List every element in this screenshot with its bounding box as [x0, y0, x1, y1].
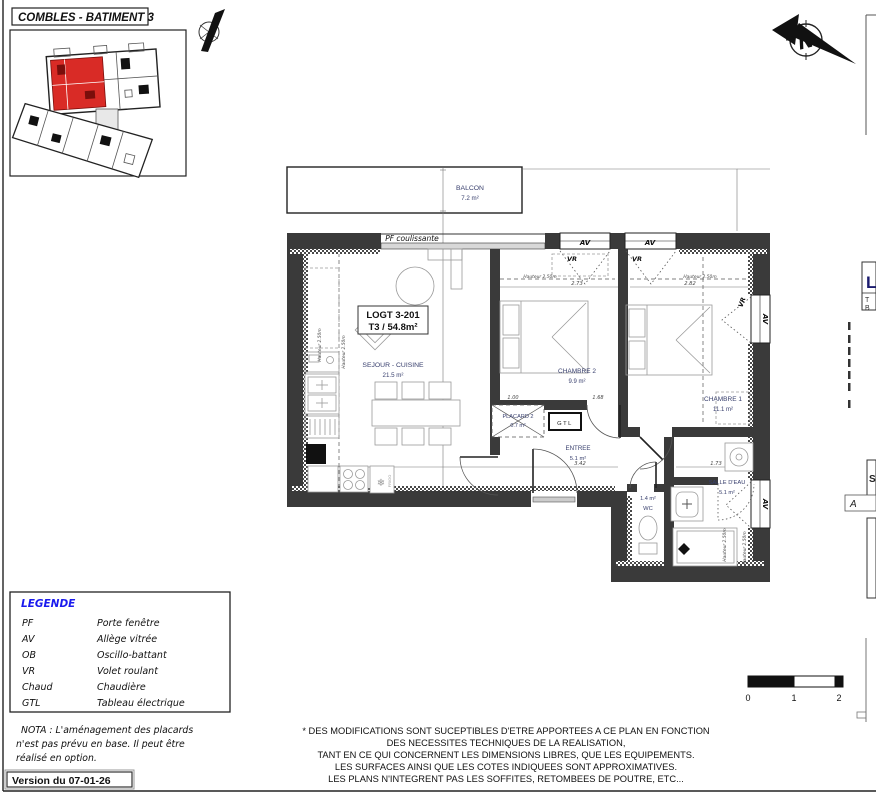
floor-plan-sheet: COMBLES - BATIMENT 3	[0, 0, 876, 800]
cutoff-letter: A	[849, 499, 857, 510]
hauteur-label: Hauteur 2.50m	[683, 274, 716, 280]
hauteur-label: Hauteur 2.50m	[742, 531, 748, 564]
dim-label: 3.42	[574, 461, 586, 467]
scale-tick: 1	[791, 693, 796, 703]
nota-block: NOTA : L'aménagement des placards n'est …	[16, 725, 193, 764]
room-sde-name: SALLE D'EAU	[709, 480, 746, 486]
plan-canvas: COMBLES - BATIMENT 3	[0, 0, 876, 800]
room-balcon-area: 7.2 m²	[461, 195, 479, 202]
svg-text:❄: ❄	[377, 478, 385, 489]
disclaimer-line: LES SURFACES AINSI QUE LES COTES INDIQUE…	[335, 762, 677, 772]
disclaimer-line: * DES MODIFICATIONS SONT SUCEPTIBLES D'E…	[302, 726, 709, 736]
legend-abbr: AV	[21, 634, 36, 645]
gtl-label: GTL	[557, 421, 573, 427]
cutoff-letter: B	[865, 305, 870, 312]
north-arrow-large: N	[772, 14, 856, 64]
legend-label: Tableau électrique	[97, 698, 185, 709]
unit-number: LOGT 3-201	[366, 310, 420, 321]
disclaimer-line: DES NECESSITES TECHNIQUES DE LA REALISAT…	[387, 738, 626, 748]
av-label: AV	[761, 313, 769, 325]
disclaimer-block: * DES MODIFICATIONS SONT SUCEPTIBLES D'E…	[302, 726, 709, 784]
room-chambre2-name: CHAMBRE 2	[558, 368, 596, 375]
chaud-boiler	[306, 444, 326, 464]
legend-abbr: Chaud	[22, 682, 53, 693]
room-sejour-area: 21.5 m²	[383, 372, 404, 379]
kitchen: ❄	[305, 268, 394, 493]
room-chambre1-area: 11.1 m²	[713, 407, 733, 413]
dim-label: 1.68	[592, 395, 603, 401]
room-chambre1-name: CHAMBRE 1	[704, 396, 742, 403]
pf-label: PF coulissante	[385, 234, 439, 243]
dim-label: 1.73	[710, 461, 722, 467]
hauteur-label: Hauteur 2.50m	[722, 528, 728, 561]
vr-label: VR	[737, 296, 748, 308]
north-arrow-small	[199, 9, 225, 52]
legend-abbr: VR	[22, 666, 35, 677]
title-block: COMBLES - BATIMENT 3	[12, 8, 154, 25]
legend-label: Volet roulant	[97, 666, 159, 677]
legend-abbr: GTL	[22, 698, 40, 709]
scale-tick: 0	[745, 693, 750, 703]
bedroom2-bed	[500, 254, 608, 373]
nota-line: NOTA : L'aménagement des placards	[21, 725, 193, 736]
av-label: AV	[579, 239, 591, 247]
room-sde-area: 5.1 m²	[719, 490, 735, 496]
legend-label: Chaudière	[97, 682, 146, 693]
room-sejour-name: SEJOUR - CUISINE	[362, 362, 424, 369]
sejour-furniture	[355, 249, 462, 445]
room-balcon-name: BALCON	[456, 185, 484, 192]
hauteur-label: Hauteur 2.50m	[317, 328, 323, 361]
room-wc-area: 1.4 m²	[640, 496, 656, 502]
cutoff-text-fragments	[848, 322, 851, 408]
cutoff-letter: L	[866, 273, 876, 292]
legend-label: Oscillo-battant	[97, 650, 168, 661]
unit-type-area: T3 / 54.8m²	[368, 322, 417, 333]
room-placard-name: PLACARD 2	[502, 414, 533, 420]
cutoff-right-panel: L T B S A	[845, 15, 876, 722]
legend-label: Allège vitrée	[96, 634, 157, 645]
scale-tick: 2	[836, 693, 841, 703]
av-label: AV	[761, 498, 769, 510]
legend-box: LEGENDE PF Porte fenêtre AV Allège vitré…	[10, 592, 230, 712]
nota-line: n'est pas prévu en base. Il peut être	[16, 739, 185, 750]
key-plan	[10, 30, 186, 178]
cutoff-letter: S	[869, 474, 876, 485]
hauteur-label: Hauteur 2.50m	[341, 335, 347, 368]
room-chambre2-area: 9.9 m²	[568, 379, 585, 385]
balcony-outline	[287, 167, 522, 213]
legend-abbr: PF	[22, 618, 34, 629]
legend-abbr: OB	[22, 650, 36, 661]
room-placard-area: 0.7 m²	[510, 423, 525, 429]
dim-label: 1.00	[507, 395, 518, 401]
version-label: Version du 07-01-26	[12, 775, 111, 787]
frigo-label: FRIGO	[387, 475, 392, 488]
scale-bar: 0 1 2	[745, 676, 843, 703]
cutoff-letter: T	[865, 297, 870, 304]
vr-label: VR	[567, 255, 577, 263]
disclaimer-line: TANT EN CE QUI CONCERNENT LES DIMENSIONS…	[317, 750, 694, 760]
nota-line: réalisé en option.	[16, 753, 97, 764]
room-wc-name: WC	[643, 506, 653, 512]
page-title: COMBLES - BATIMENT 3	[18, 12, 154, 24]
version-box: Version du 07-01-26	[5, 770, 134, 789]
room-entree-name: ENTREE	[565, 445, 590, 452]
apartment-plan: ❄	[287, 167, 770, 582]
legend-label: Porte fenêtre	[97, 618, 160, 629]
bathroom-fixtures	[639, 443, 753, 566]
av-label: AV	[644, 239, 656, 247]
legend-title: LEGENDE	[21, 598, 76, 610]
dim-label: 2.82	[684, 281, 696, 287]
vr-label: VR	[632, 255, 642, 263]
hauteur-label: Hauteur 2.50m	[523, 274, 556, 280]
unit-label-box: LOGT 3-201 T3 / 54.8m²	[358, 306, 428, 334]
disclaimer-line: LES PLANS N'INTEGRENT PAS LES SOFFITES, …	[328, 774, 684, 784]
dim-label: 2.73	[571, 281, 583, 287]
